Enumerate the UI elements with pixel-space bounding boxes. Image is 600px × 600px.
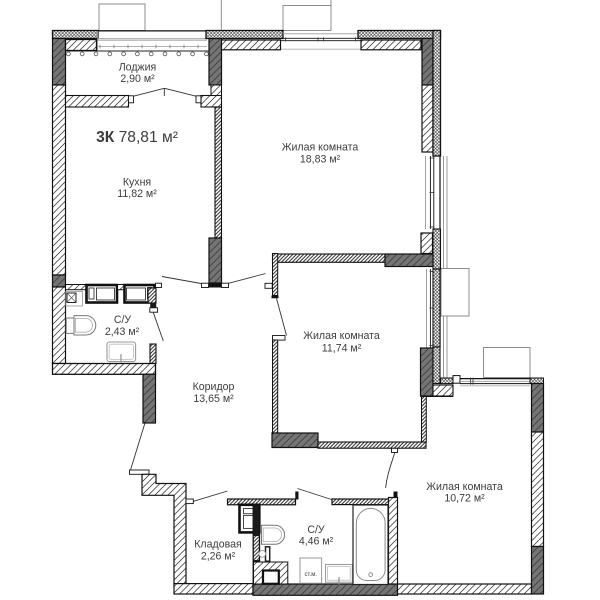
svg-text:2,26 м²: 2,26 м²	[201, 551, 236, 563]
svg-text:18,83 м²: 18,83 м²	[300, 154, 341, 166]
svg-text:3К 78,81 м²: 3К 78,81 м²	[96, 129, 178, 146]
svg-text:4,46 м²: 4,46 м²	[299, 536, 334, 548]
svg-text:10,72 м²: 10,72 м²	[444, 493, 485, 505]
svg-text:Лоджия: Лоджия	[119, 62, 157, 74]
svg-text:С/У: С/У	[307, 524, 325, 536]
svg-text:Жилая комната: Жилая комната	[426, 481, 503, 493]
svg-text:Кухня: Кухня	[123, 177, 151, 189]
svg-text:Коридор: Коридор	[193, 381, 235, 393]
svg-text:13,65 м²: 13,65 м²	[193, 393, 234, 405]
svg-text:2,90 м²: 2,90 м²	[120, 73, 155, 85]
svg-text:11,74 м²: 11,74 м²	[322, 343, 362, 355]
svg-text:2,43 м²: 2,43 м²	[105, 326, 140, 338]
svg-text:Кладовая: Кладовая	[194, 539, 241, 551]
svg-text:Жилая комната: Жилая комната	[303, 330, 380, 342]
svg-text:ст.м.: ст.м.	[305, 572, 318, 578]
svg-text:Жилая комната: Жилая комната	[282, 142, 359, 154]
svg-text:11,82 м²: 11,82 м²	[117, 188, 157, 200]
svg-text:С/У: С/У	[114, 314, 132, 326]
